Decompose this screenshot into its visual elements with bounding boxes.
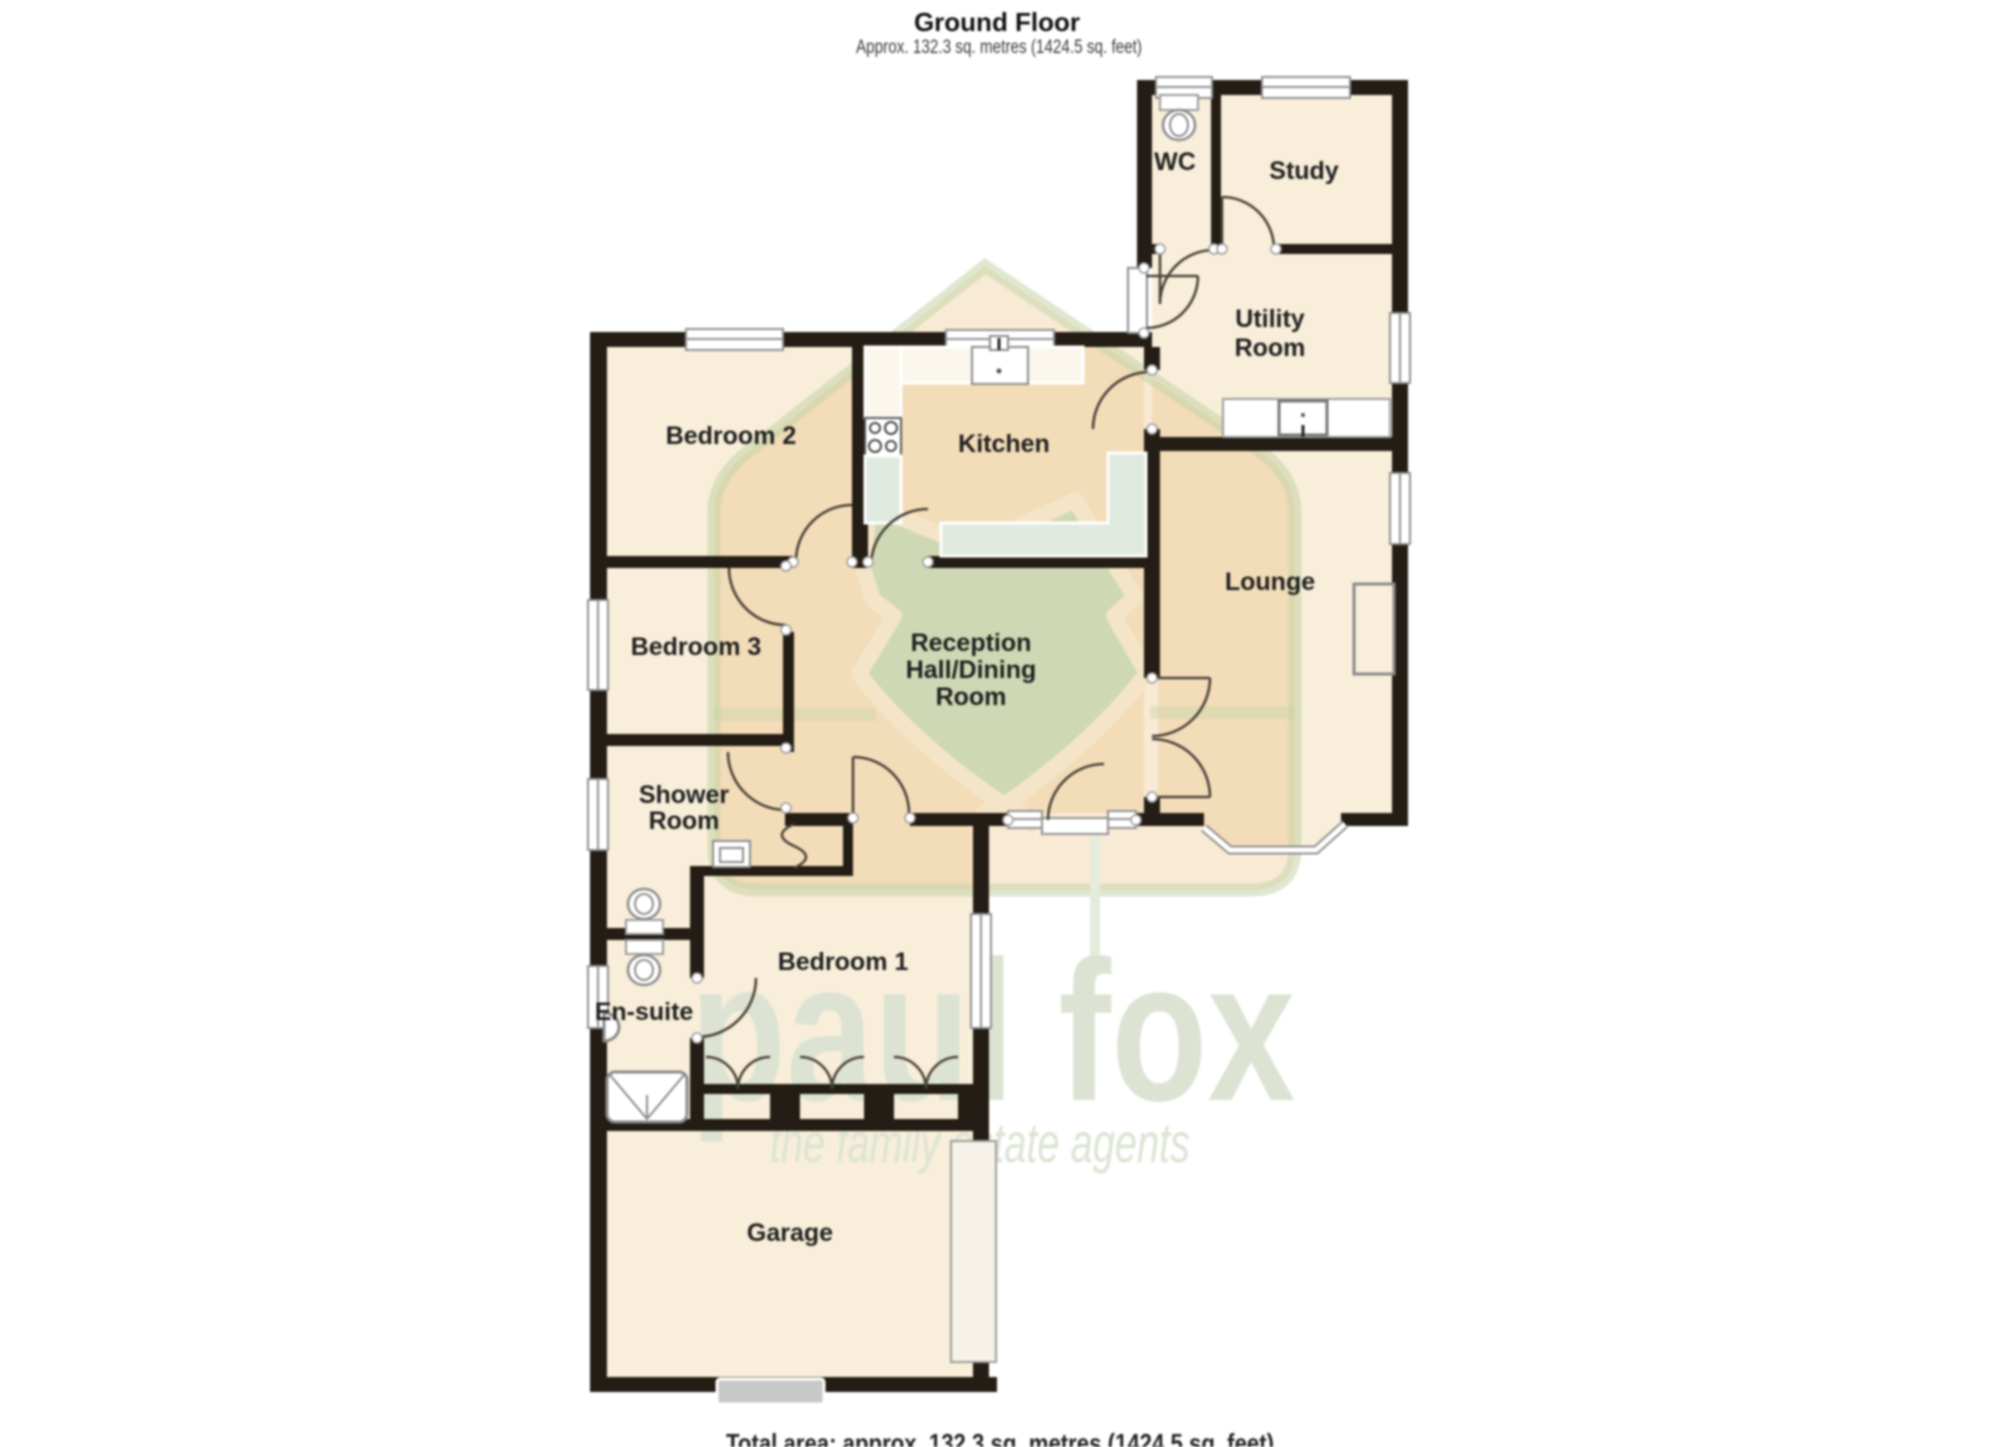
svg-text:Bedroom 3: Bedroom 3 [631,633,762,661]
svg-text:Room: Room [936,683,1007,711]
svg-text:Garage: Garage [747,1219,833,1247]
svg-text:Room: Room [649,807,720,835]
svg-text:Approx. 132.3 sq. metres (1424: Approx. 132.3 sq. metres (1424.5 sq. fee… [856,37,1142,58]
svg-text:Lounge: Lounge [1225,568,1315,596]
svg-text:Hall/Dining: Hall/Dining [906,656,1037,684]
svg-text:Shower: Shower [639,781,730,809]
svg-text:Ground Floor: Ground Floor [914,7,1080,37]
svg-text:Utility: Utility [1235,305,1305,333]
svg-text:Reception: Reception [911,629,1032,657]
svg-text:Study: Study [1269,157,1339,185]
svg-text:Kitchen: Kitchen [958,430,1050,458]
svg-text:Bedroom 1: Bedroom 1 [778,948,909,976]
svg-text:Total area: approx. 132.3 sq.: Total area: approx. 132.3 sq. metres (14… [726,1428,1274,1447]
svg-text:Room: Room [1235,334,1306,362]
svg-text:WC: WC [1154,148,1196,176]
svg-text:En-suite: En-suite [595,998,694,1026]
svg-text:Bedroom 2: Bedroom 2 [666,422,797,450]
